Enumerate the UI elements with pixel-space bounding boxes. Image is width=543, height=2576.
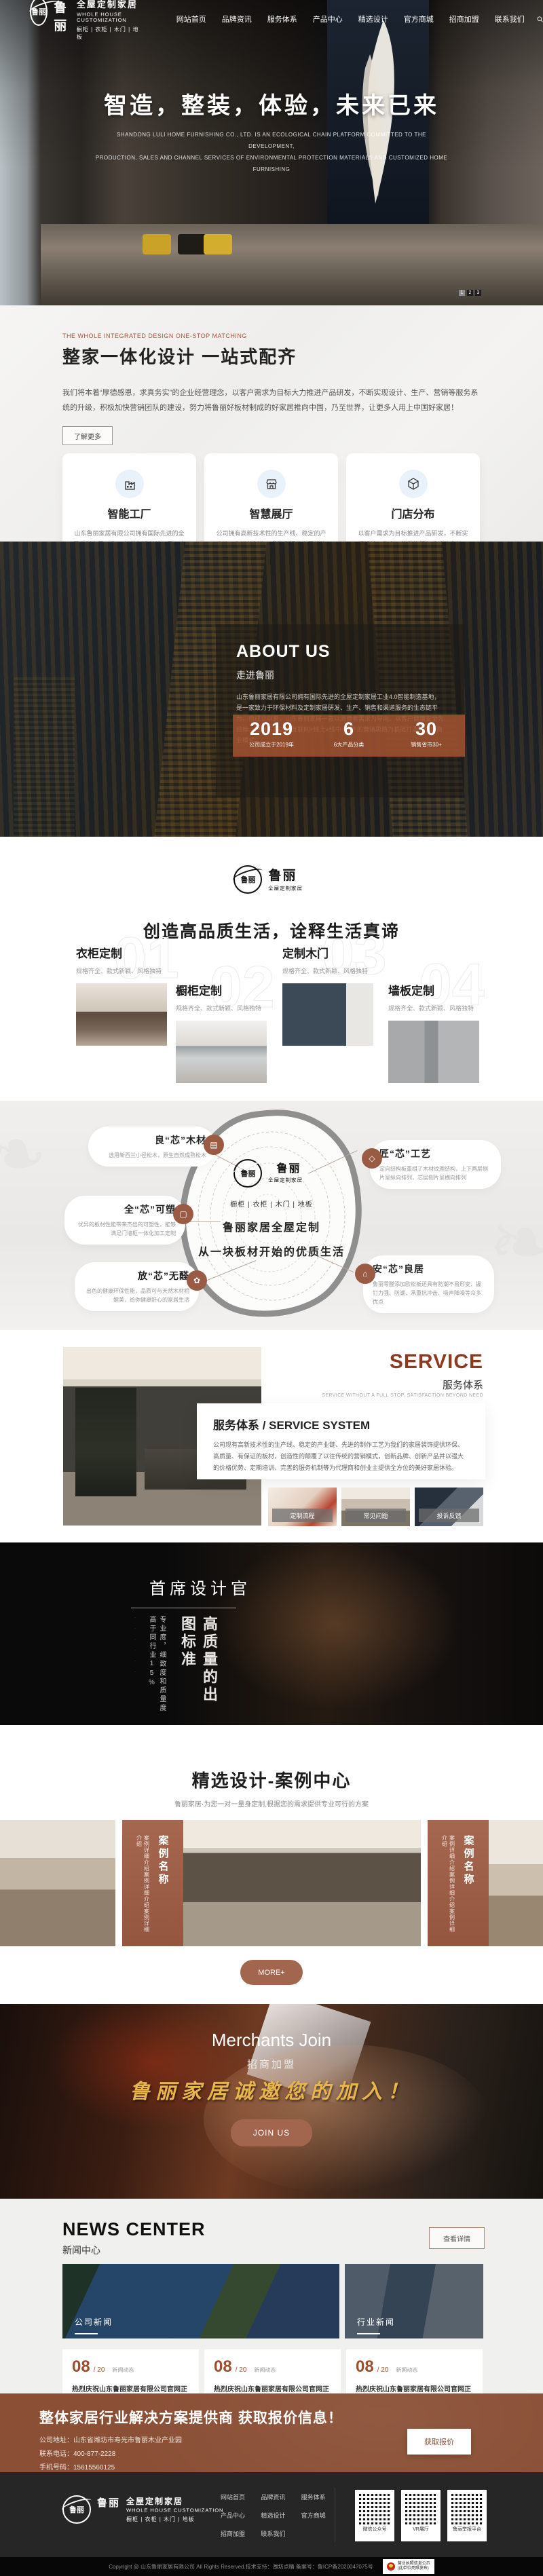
cta-address: 公司地址：山东省潍坊市寿光市鲁丽木业产业园 (39, 2434, 182, 2444)
hero-subtitle-line1: SHANDONG LULI HOME FURNISHING CO., LTD. … (95, 129, 448, 152)
cta-phone: 联系电话：400-877-2228 (39, 2448, 115, 2458)
logo-char: 鲁丽 (31, 6, 46, 17)
hero-page-3[interactable]: 3 (475, 290, 481, 296)
card-smart-showroom[interactable]: 智慧展厅 公司拥有高新技术性的生产线、稳定的产业链、先进的制作工艺为我们的家居装… (204, 453, 338, 542)
card-title: 智能工厂 (72, 505, 187, 521)
news-tag: 新闻动态 (254, 2366, 276, 2374)
copyright-bar: Copyright @ 山东鲁丽家居有限公司 All Rights Reserv… (0, 2557, 543, 2576)
case-banner: 案例详细介绍案例详细介绍案例详细介绍 案例名称 (122, 1820, 183, 1946)
hero-page-2[interactable]: 2 (467, 290, 473, 296)
hero-title: 智造，整装，体验，未来已来 (0, 87, 543, 120)
qrcode-image (451, 2493, 483, 2524)
logo-title: 鲁丽 (268, 1159, 309, 1175)
product-cabinet[interactable]: 02 橱柜定制 规格齐全、款式新颖、风格独特 (176, 981, 267, 1083)
logo-char: 鲁丽 (240, 1168, 255, 1179)
stat-value: 30 (388, 719, 465, 740)
news-category-industry[interactable]: 行业新闻 (345, 2264, 483, 2338)
divider-line (131, 1608, 236, 1608)
product-title: 橱柜定制 (176, 981, 267, 998)
footer-nav: 网站首页 品牌资讯 服务体系 产品中心 精选设计 官方商城 招商加盟 联系我们 (221, 2493, 329, 2538)
nav-item-brand-news[interactable]: 品牌资讯 (222, 14, 252, 24)
service-links: 定制流程 常见问题 投诉反馈 (268, 1488, 483, 1526)
cube-icon (399, 470, 428, 498)
callout-text: 选用新西兰小径松木，原生自然成熟松木 (98, 1151, 206, 1160)
join-calligraphy: 鲁丽家居诚邀您的加入！ (0, 2075, 543, 2104)
fern-decor: ❧ (488, 1196, 543, 1290)
core-line2: 从一块板材开始的优质生活 (168, 1243, 375, 1259)
news-month: / 20 (236, 2366, 247, 2374)
footer-logo: 鲁丽 鲁丽 全屋定制家居 WHOLE HOUSE CUSTOMIZATION 橱… (62, 2495, 241, 2524)
quote-cta-section: 整体家居行业解决方案提供商 获取报价信息！ 公司地址：山东省潍坊市寿光市鲁丽木业… (0, 2393, 543, 2472)
card-text: 以客户需求为目标推进产品研发，不断实现设计、生产、营销等服务系统的升级，积极加快… (356, 528, 470, 542)
card-text: 公司拥有高新技术性的生产线、稳定的产业链、先进的制作工艺为我们的家居装饰提供环保… (214, 528, 329, 542)
news-category-company[interactable]: 公司新闻 (62, 2264, 339, 2338)
fern-decor: ❧ (0, 1107, 48, 1202)
home-icon: ⌂ (355, 1264, 375, 1284)
service-title-cn: 服务体系 (271, 1378, 483, 1392)
products-section: 鲁丽 鲁丽 全屋定制家居 创造高品质生活，诠释生活真谛 01 衣柜定制 规格齐全… (0, 837, 543, 1101)
intro-more-button[interactable]: 了解更多 (62, 426, 113, 445)
service-link-label[interactable]: 常见问题 (345, 1509, 406, 1522)
cta-mobile: 手机号码：15615560125 (39, 2461, 115, 2471)
footer-nav-home[interactable]: 网站首页 (221, 2493, 248, 2501)
nav-item-design[interactable]: 精选设计 (358, 14, 388, 24)
news-detail-button[interactable]: 查看详情 (429, 2227, 485, 2249)
callout-craft: ◇ 匠“芯”工艺 定向结构板重组了木材纹理结构，上下两层刨片呈纵向排列，芯层刨片… (370, 1140, 501, 1189)
case-photo (183, 1820, 421, 1946)
brand-logo-icon: 鲁丽 (62, 2495, 91, 2524)
hero-pagination: 1 2 3 (459, 290, 481, 296)
qrcode-label: 微信公众号 (355, 2526, 394, 2533)
logo-char: 鲁丽 (69, 2504, 84, 2515)
callout-title: 全“芯”可塑 (74, 1202, 176, 1216)
service-section: SERVICE 服务体系 SERVICE WITHOUT A FULL STOP… (0, 1330, 543, 1542)
product-photo-wallboard[interactable] (388, 1021, 479, 1083)
sofa-pillow (178, 234, 206, 254)
case-card-center[interactable]: 案例详细介绍案例详细介绍案例详细介绍 案例名称 (122, 1820, 421, 1946)
footer-nav-brand-news[interactable]: 品牌资讯 (261, 2493, 288, 2501)
news-section: NEWS CENTER 新闻中心 查看详情 公司新闻 行业新闻 08/ 20新闻… (0, 2199, 543, 2393)
card-title: 智慧展厅 (214, 505, 329, 521)
service-link-faq[interactable]: 常见问题 (341, 1488, 410, 1526)
case-title-vertical: 案例名称 (462, 1835, 476, 1946)
product-wardrobe[interactable]: 01 衣柜定制 规格齐全、款式新颖、风格独特 (76, 944, 167, 1046)
nav-item-contact[interactable]: 联系我们 (495, 14, 525, 24)
case-desc-vertical: 案例详细介绍案例详细介绍案例详细介绍 (136, 1835, 151, 1937)
nav-item-join[interactable]: 招商加盟 (449, 14, 479, 24)
card-title: 门店分布 (356, 505, 470, 521)
sofa-pillow (143, 234, 171, 254)
core-line1: 鲁丽家居全屋定制 (168, 1218, 375, 1234)
service-link-label[interactable]: 定制流程 (272, 1509, 333, 1522)
brand-logo-icon: 鲁丽 (233, 1159, 262, 1188)
callout-title: 安“芯”良居 (373, 1262, 485, 1276)
news-item-title[interactable]: 热烈庆祝山东鲁丽家居有限公司官网正式上线！ (356, 2383, 473, 2393)
news-category-label[interactable]: 行业新闻 (357, 2316, 395, 2328)
logo-fullname: 全屋定制家居 (268, 1176, 303, 1183)
product-title: 墙板定制 (388, 981, 479, 998)
card-store-distribution[interactable]: 门店分布 以客户需求为目标推进产品研发，不断实现设计、生产、营销等服务系统的升级… (346, 453, 480, 542)
callout-formaldehyde-free: ✿ 放“芯”无醛 出色的健康环保性能，品质可与天然木材相媲美，给你健康舒心的家居… (75, 1262, 199, 1311)
service-tagline: SERVICE WITHOUT A FULL STOP, SATISFACTIO… (217, 1393, 483, 1398)
case-photo (0, 1820, 115, 1946)
case-card-left[interactable] (0, 1820, 115, 1946)
news-card[interactable]: 08/ 20新闻动态 热烈庆祝山东鲁丽家居有限公司官网正式上线！ 热烈庆祝山东鲁… (346, 2349, 483, 2393)
news-category-label[interactable]: 公司新闻 (75, 2316, 113, 2328)
callout-safe-home: ⌂ 安“芯”良居 鲁丽零醛添加欧松板还具有防潮不易形变、握钉力强、防潮、承重抗冲… (363, 1255, 494, 1313)
stat-provinces: 30 销售省市30+ (388, 715, 465, 757)
news-day: 08 (356, 2357, 374, 2376)
product-desc: 规格齐全、款式新颖、风格独特 (176, 1004, 267, 1012)
callout-title: 放“芯”无醛 (84, 1269, 189, 1283)
callout-text: 定向结构板重组了木材纹理结构，上下两层刨片呈纵向排列，芯层刨片呈横向排列 (379, 1164, 491, 1182)
about-overlay: ABOUT US 走进鲁丽 山东鲁丽家居有限公司拥有国际先进的全屋定制家居工业4… (216, 624, 464, 797)
top-header: 鲁丽 鲁丽 全屋定制家居 WHOLE HOUSE CUSTOMIZATION 橱… (0, 0, 543, 38)
cases-carousel: 案例详细介绍案例详细介绍案例详细介绍 案例名称 案例详细介绍案例详细介绍案例详细… (0, 1820, 543, 1946)
product-desc: 规格齐全、款式新颖、风格独特 (76, 966, 167, 975)
storefront-icon (257, 470, 286, 498)
wood-icon: ▤ (204, 1135, 224, 1155)
craft-icon: ◇ (362, 1148, 382, 1169)
qrcode-wechat: 微信公众号 (355, 2490, 394, 2541)
nav-item-products[interactable]: 产品中心 (313, 14, 343, 24)
service-link-label[interactable]: 投诉反馈 (419, 1509, 479, 1522)
about-stats: 2019 公司成立于2019年 6 6大产品分类 30 销售省市30+ (233, 715, 465, 757)
join-us-button[interactable]: JOIN US (231, 2119, 312, 2146)
service-link-process[interactable]: 定制流程 (268, 1488, 337, 1526)
brand-logo-icon: 鲁丽 (233, 865, 262, 894)
core-material-section: ❧ ❧ 鲁丽 鲁丽 全屋定制家居 橱柜 | 衣柜 | 木门 | 地板 鲁丽家居全… (0, 1101, 543, 1330)
footer-nav-design[interactable]: 精选设计 (261, 2511, 288, 2520)
cabinet-decor (75, 1388, 136, 1496)
about-title: ABOUT US (236, 642, 464, 662)
luli-homepage: 鲁丽 鲁丽 全屋定制家居 WHOLE HOUSE CUSTOMIZATION 橱… (0, 0, 543, 2576)
centered-brand-logo: 鲁丽 鲁丽 全屋定制家居 (0, 865, 543, 894)
footer-nav-products[interactable]: 产品中心 (221, 2511, 248, 2520)
stat-categories: 6 6大产品分类 (310, 715, 388, 757)
logo-title: 鲁丽 (268, 865, 309, 884)
sofa-pillow (204, 234, 232, 254)
stat-label: 6大产品分类 (310, 741, 388, 749)
callout-title: 良“芯”木材 (98, 1133, 206, 1147)
factory-icon (115, 470, 144, 498)
intro-cards: 智能工厂 山东鲁丽家居有限公司拥有国际先进的全屋定制家居工业4.0智能制造基地，… (62, 453, 481, 542)
news-day: 08 (214, 2357, 232, 2376)
footer-nav-service[interactable]: 服务体系 (301, 2493, 329, 2501)
footer-nav-contact[interactable]: 联系我们 (261, 2529, 288, 2538)
logo-char: 鲁丽 (240, 874, 255, 885)
product-door[interactable]: 03 定制木门 规格齐全、款式新颖、风格独特 (282, 944, 373, 1046)
callout-wood: ▤ 良“芯”木材 选用新西兰小径松木，原生自然成熟松木 (88, 1126, 216, 1167)
case-banner: 案例详细介绍案例详细介绍案例详细介绍 案例名称 (428, 1820, 489, 1946)
core-tagline: 橱柜 | 衣柜 | 木门 | 地板 (168, 1198, 375, 1209)
designer-vertical-text: · · · · · · 专业度，细致度和质量度高于同行业15% 高质量的出图标准 (133, 1616, 220, 1718)
news-day: 08 (72, 2357, 90, 2376)
qrcode-label: 鲁丽举报平台 (447, 2526, 487, 2533)
service-card: 服务体系 / SERVICE SYSTEM 公司现有高新技术性的生产线、稳定的产… (197, 1403, 485, 1479)
stat-value: 2019 (233, 719, 310, 740)
join-title-cn: 招商加盟 (0, 2057, 543, 2071)
news-item-title[interactable]: 热烈庆祝山东鲁丽家居有限公司官网正式上线！ (214, 2383, 331, 2393)
cases-subtitle: 鲁丽家居·为您一对一量身定制,根据您的需求提供专业可行的方案 (0, 1798, 543, 1808)
news-title-en: NEWS CENTER (62, 2219, 206, 2240)
core-center-text: 鲁丽 鲁丽 全屋定制家居 橱柜 | 衣柜 | 木门 | 地板 鲁丽家居全屋定制 … (168, 1159, 375, 1259)
leaf-icon: ✿ (187, 1270, 207, 1291)
footer: 鲁丽 鲁丽 全屋定制家居 WHOLE HOUSE CUSTOMIZATION 橱… (0, 2472, 543, 2557)
callout-text: 优异的板材性能带来杰出的可塑性，能够满足门墙柜一体化加工定制 (74, 1220, 176, 1238)
main-nav: 网站首页 品牌资讯 服务体系 产品中心 精选设计 官方商城 招商加盟 联系我们 (176, 14, 525, 24)
stat-value: 6 (310, 719, 388, 740)
join-title-en: Merchants Join (0, 2030, 543, 2051)
intro-paragraph: 我们将本着“厚德感恩，求真务实”的企业经营理念，以客户需求为目标大力推进产品研发… (62, 385, 483, 415)
logo-fullname: 全屋定制家居 (268, 884, 303, 892)
news-tag: 新闻动态 (396, 2366, 417, 2374)
footer-nav-mall[interactable]: 官方商城 (301, 2511, 329, 2520)
hero-section: 鲁丽 鲁丽 全屋定制家居 WHOLE HOUSE CUSTOMIZATION 橱… (0, 0, 543, 305)
product-wallboard[interactable]: 04 墙板定制 规格齐全、款式新颖、风格独特 (388, 981, 479, 1083)
callout-title: 匠“芯”工艺 (379, 1147, 491, 1160)
logo-fullname: 全屋定制家居 (77, 0, 144, 10)
case-desc-vertical: 案例详细介绍案例详细介绍案例详细介绍 (441, 1835, 456, 1937)
brand-logo[interactable]: 鲁丽 鲁丽 全屋定制家居 WHOLE HOUSE CUSTOMIZATION 橱… (30, 0, 144, 41)
about-subtitle: 走进鲁丽 (236, 668, 464, 682)
get-quote-button[interactable]: 获取报价 (407, 2429, 471, 2455)
nav-item-service[interactable]: 服务体系 (267, 14, 297, 24)
qrcode-report: 鲁丽举报平台 (447, 2490, 487, 2541)
stat-founded: 2019 公司成立于2019年 (233, 715, 310, 757)
label-underline (357, 2333, 380, 2334)
nav-item-mall[interactable]: 官方商城 (404, 14, 434, 24)
callout-plastic: ▢ 全“芯”可塑 优异的板材性能带来杰出的可塑性，能够满足门墙柜一体化加工定制 (64, 1196, 185, 1245)
qrcode-label: VR展厅 (401, 2526, 441, 2533)
logo-tagline: 橱柜 | 衣柜 | 木门 | 地板 (77, 26, 144, 41)
intro-eyebrow: THE WHOLE INTEGRATED DESIGN ONE-STOP MAT… (62, 333, 247, 339)
product-desc: 规格齐全、款式新颖、风格独特 (282, 966, 373, 975)
qrcode-image (359, 2493, 390, 2524)
hero-subtitle: SHANDONG LULI HOME FURNISHING CO., LTD. … (95, 129, 448, 175)
license-badge-line1: 营业执照信息公示 (398, 2562, 430, 2566)
news-card[interactable]: 08/ 20新闻动态 热烈庆祝山东鲁丽家居有限公司官网正式上线！ 热烈庆祝山东鲁… (62, 2349, 199, 2393)
stat-label: 公司成立于2019年 (233, 741, 310, 749)
footer-nav-join[interactable]: 招商加盟 (221, 2529, 248, 2538)
logo-fullname-en: WHOLE HOUSE CUSTOMIZATION (126, 2507, 223, 2514)
product-photo-wardrobe[interactable] (76, 983, 167, 1046)
hero-subtitle-line2: PRODUCTION, SALES AND CHANNEL SERVICES O… (95, 152, 448, 175)
cta-title: 整体家居行业解决方案提供商 获取报价信息！ (39, 2407, 343, 2427)
cases-more-button[interactable]: MORE+ (240, 1960, 303, 1985)
product-title: 衣柜定制 (76, 944, 167, 961)
stat-label: 销售省市30+ (388, 741, 465, 749)
hero-page-1[interactable]: 1 (459, 290, 465, 296)
intro-section: THE WHOLE INTEGRATED DESIGN ONE-STOP MAT… (0, 305, 543, 542)
service-link-feedback[interactable]: 投诉反馈 (415, 1488, 483, 1526)
merchants-join-section: Merchants Join 招商加盟 鲁丽家居诚邀您的加入！ JOIN US (0, 2004, 543, 2199)
copyright-text: Copyright @ 山东鲁丽家居有限公司 All Rights Reserv… (109, 2563, 373, 2571)
logo-title: 鲁丽 (97, 2495, 120, 2509)
callout-text: 鲁丽零醛添加欧松板还具有防潮不易形变、握钉力强、防潮、承重抗冲击、吸声降噪等众多… (373, 1280, 485, 1306)
shape-icon: ▢ (173, 1204, 193, 1224)
chief-designer-section: 首席设计官 · · · · · · 专业度，细致度和质量度高于同行业15% 高质… (0, 1542, 543, 1725)
product-photo-door[interactable] (282, 983, 373, 1046)
service-card-title: 服务体系 / SERVICE SYSTEM (213, 1416, 469, 1433)
cases-section: 精选设计-案例中心 鲁丽家居·为您一对一量身定制,根据您的需求提供专业可行的方案… (0, 1725, 543, 2004)
card-text: 山东鲁丽家居有限公司拥有国际先进的全屋定制家居工业4.0智能制造基地，是一家致力… (72, 528, 187, 542)
label-underline (75, 2333, 98, 2334)
cases-title: 精选设计-案例中心 (0, 1767, 543, 1792)
designer-vertical-sub: 专业度，细致度和质量度高于同行业15% (147, 1616, 167, 1714)
designer-title: 首席设计官 (149, 1575, 251, 1599)
news-item-title[interactable]: 热烈庆祝山东鲁丽家居有限公司官网正式上线！ (72, 2383, 189, 2393)
about-section: ABOUT US 走进鲁丽 山东鲁丽家居有限公司拥有国际先进的全屋定制家居工业4… (0, 542, 543, 837)
footer-qrcodes: 微信公众号 VR展厅 鲁丽举报平台 (355, 2490, 487, 2541)
vertical-decor-text: · · · · · · (133, 1616, 137, 1697)
news-title-cn: 新闻中心 (62, 2243, 100, 2257)
service-title-en: SERVICE (271, 1350, 483, 1374)
license-badge-line2: (此单位亮照发布) (398, 2566, 430, 2571)
card-smart-factory[interactable]: 智能工厂 山东鲁丽家居有限公司拥有国际先进的全屋定制家居工业4.0智能制造基地，… (62, 453, 196, 542)
license-badge[interactable]: 营业执照信息公示 (此单位亮照发布) (383, 2559, 434, 2574)
service-card-text: 公司现有高新技术性的生产线、稳定的产业链、先进的制作工艺为我们的家居装饰提供环保… (213, 1439, 469, 1474)
designer-vertical-main: 高质量的出图标准 (176, 1616, 220, 1718)
news-month: / 20 (377, 2366, 389, 2374)
intro-title: 整家一体化设计 一站式配齐 (62, 343, 297, 368)
brand-logo-icon: 鲁丽 (30, 0, 48, 26)
products-headline: 创造高品质生活，诠释生活真谛 (0, 918, 543, 943)
qrcode-image (405, 2493, 436, 2524)
callout-text: 出色的健康环保性能，品质可与天然木材相媲美，给你健康舒心的家居生活 (84, 1287, 189, 1304)
news-month: / 20 (94, 2366, 105, 2374)
case-title-vertical: 案例名称 (156, 1835, 170, 1946)
product-photo-kitchen[interactable] (176, 1021, 267, 1083)
news-tag: 新闻动态 (112, 2366, 134, 2374)
case-photo (489, 1820, 543, 1946)
search-icon[interactable] (537, 14, 543, 24)
product-title: 定制木门 (282, 944, 373, 961)
news-card[interactable]: 08/ 20新闻动态 热烈庆祝山东鲁丽家居有限公司官网正式上线！ 热烈庆祝山东鲁… (204, 2349, 341, 2393)
log-pile-photo (14, 677, 75, 837)
logo-fullname-en: WHOLE HOUSE CUSTOMIZATION (77, 12, 134, 23)
product-desc: 规格齐全、款式新颖、风格独特 (388, 1004, 479, 1012)
footer-divider (335, 2487, 335, 2543)
qrcode-vr: VR展厅 (401, 2490, 441, 2541)
nav-item-home[interactable]: 网站首页 (176, 14, 206, 24)
news-cards: 08/ 20新闻动态 热烈庆祝山东鲁丽家居有限公司官网正式上线！ 热烈庆祝山东鲁… (62, 2349, 483, 2393)
case-card-right[interactable]: 案例详细介绍案例详细介绍案例详细介绍 案例名称 (428, 1820, 543, 1946)
license-emblem-icon (387, 2562, 395, 2571)
